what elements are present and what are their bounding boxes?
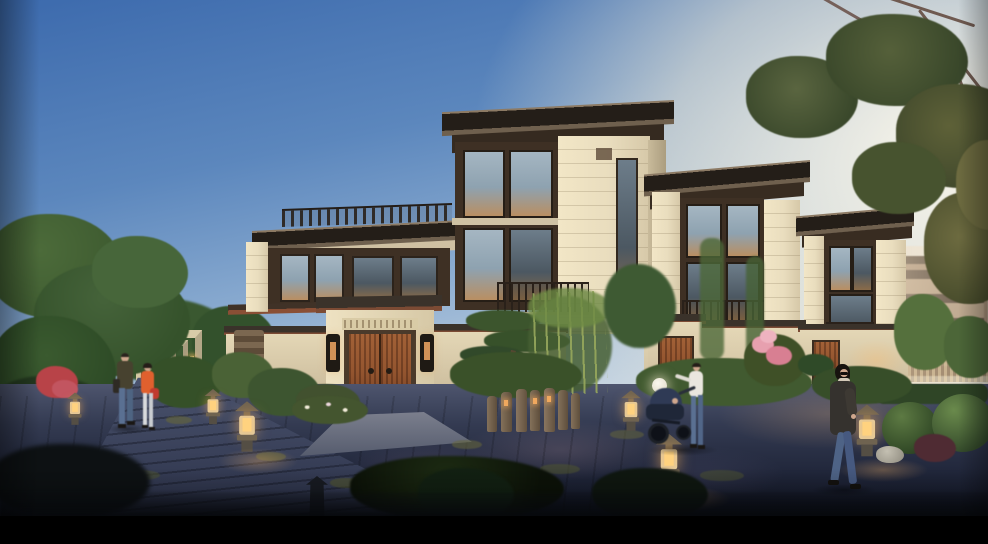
- mother-hair: [692, 363, 701, 367]
- bollard-light-icon: [547, 396, 551, 402]
- lantern-pedestal: [209, 416, 217, 424]
- woman-hair: [143, 363, 152, 368]
- lantern-pedestal: [71, 418, 78, 425]
- door-handle-icon: [368, 368, 374, 374]
- bollard-light-icon: [504, 400, 508, 406]
- man-hair: [121, 353, 129, 357]
- rendering-canvas: Dusk rendering of a modern Chinese-style…: [0, 0, 988, 544]
- terrace-villa-window: [314, 254, 344, 302]
- stone-bollard: [571, 393, 580, 429]
- distant-right-tree: [944, 316, 988, 378]
- lantern-glow-pool: [218, 448, 298, 474]
- woman2-shoe: [828, 480, 839, 485]
- mother-shoe: [698, 445, 705, 449]
- pagoda-lantern: [67, 392, 83, 425]
- lantern-light-icon: [72, 403, 78, 412]
- right-villa-1-window: [726, 204, 760, 258]
- red-shrub: [914, 434, 956, 462]
- man-shoe: [118, 424, 126, 428]
- lantern-light-icon: [243, 418, 252, 431]
- flowerbed-white: [292, 396, 368, 424]
- door-sconce-glow: [424, 342, 430, 360]
- stone-bollard: [530, 390, 540, 431]
- woman-leg: [149, 393, 153, 427]
- stone-bollard: [487, 396, 497, 432]
- terrace-villa-corner-pier: [246, 242, 268, 312]
- sunglasses-icon: [840, 372, 848, 375]
- flowering-shrub-pink-bloom: [766, 346, 792, 365]
- lantern-pedestal: [627, 422, 636, 431]
- central-villa-window: [463, 150, 505, 218]
- main-gate-lintel-carving: [344, 320, 416, 328]
- stroller-handle: [678, 386, 696, 396]
- moss-tuft: [452, 440, 482, 449]
- letterbox-bar: [0, 516, 988, 544]
- terrace-villa-window: [280, 254, 310, 302]
- stroller-wheel: [676, 425, 691, 440]
- moss-tuft: [700, 470, 744, 481]
- pagoda-lantern: [204, 389, 221, 425]
- lantern-cap: [204, 389, 221, 396]
- left-tree-foliage: [92, 236, 188, 308]
- woman2-leg: [843, 431, 857, 485]
- lantern-light-icon: [627, 404, 634, 415]
- lantern-cap: [621, 390, 641, 398]
- gap-trees: [604, 264, 676, 348]
- right-villa-2-window: [852, 246, 873, 292]
- door-sconce-glow: [330, 342, 336, 360]
- central-villa-floor-slab: [452, 218, 564, 225]
- man-leg: [127, 389, 133, 422]
- woman-leg: [143, 393, 147, 425]
- stone-bollard: [544, 388, 555, 432]
- walking-man: [113, 353, 139, 433]
- lantern-light-icon: [210, 401, 216, 410]
- flowering-shrub-pink-bloom: [760, 330, 777, 343]
- moss-tuft: [166, 416, 192, 424]
- pagoda-lantern: [621, 390, 641, 431]
- woman2-shoe: [850, 484, 861, 489]
- mother-leg: [698, 395, 703, 445]
- foreground-grass-strip: [0, 492, 988, 518]
- stone-bollard: [501, 392, 512, 432]
- right-villa-2-window: [829, 246, 852, 292]
- man-leg: [119, 388, 125, 424]
- bamboo-leaves: [528, 288, 612, 328]
- branch-leaf-cluster: [852, 142, 946, 214]
- woman-in-orange: [137, 363, 161, 435]
- pagoda-lantern: [235, 401, 260, 453]
- bollard-light-icon: [533, 398, 537, 404]
- baby-stroller: [644, 385, 696, 447]
- woman2-hand: [851, 414, 856, 419]
- lantern-cap: [235, 401, 260, 411]
- bamboo-column: [700, 238, 724, 360]
- man-shoe: [127, 421, 135, 425]
- woman-shoe: [142, 425, 148, 428]
- stone-bollard: [516, 389, 527, 432]
- stroller-wheel: [648, 423, 669, 444]
- woman-shoe: [149, 427, 155, 430]
- central-villa-ornament: [596, 148, 612, 160]
- stone-bollard: [558, 390, 568, 430]
- white-rock: [876, 446, 904, 463]
- woman-in-dark-coat: [820, 364, 876, 492]
- door-handle-icon: [386, 368, 392, 374]
- central-villa-window: [509, 150, 553, 218]
